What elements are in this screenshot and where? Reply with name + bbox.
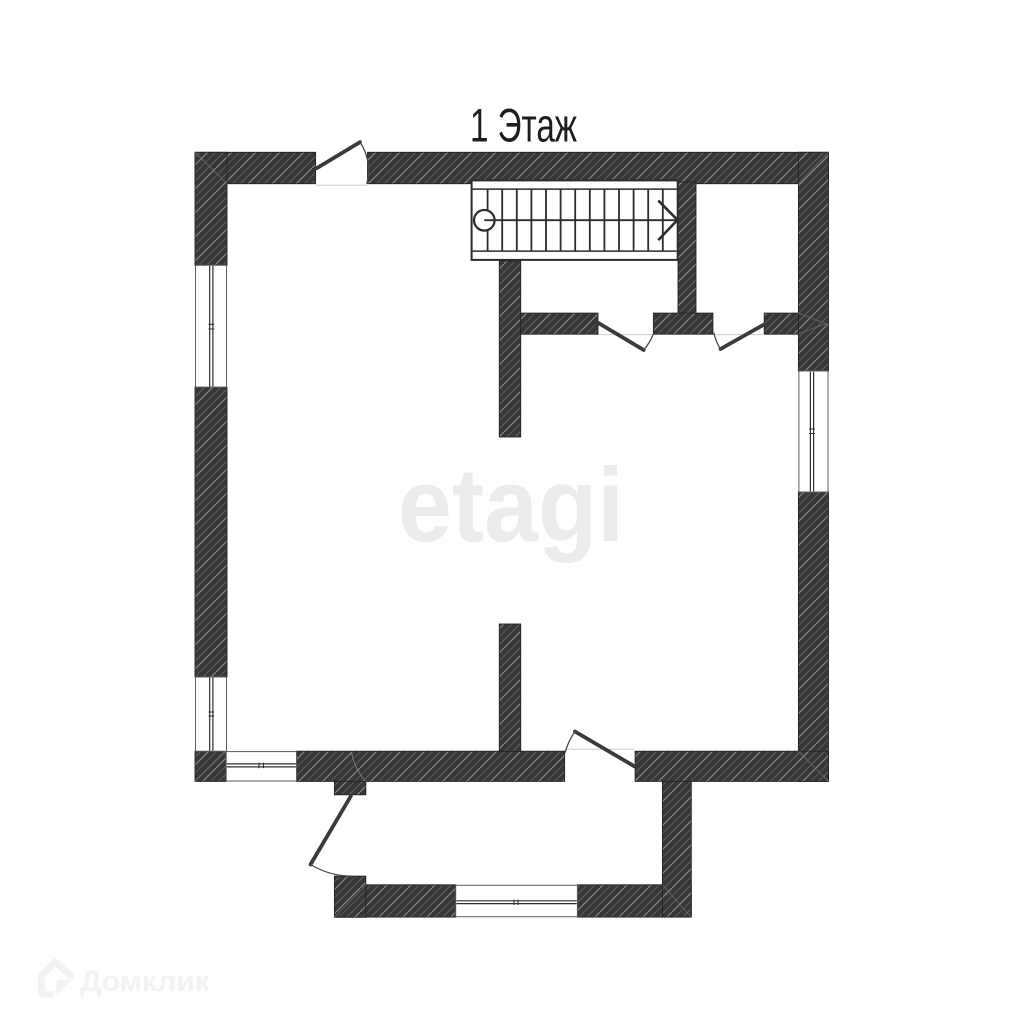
svg-text:Домклик: Домклик xyxy=(80,965,211,998)
svg-text:1 Этаж: 1 Этаж xyxy=(470,99,577,152)
svg-text:etagi: etagi xyxy=(398,447,624,564)
